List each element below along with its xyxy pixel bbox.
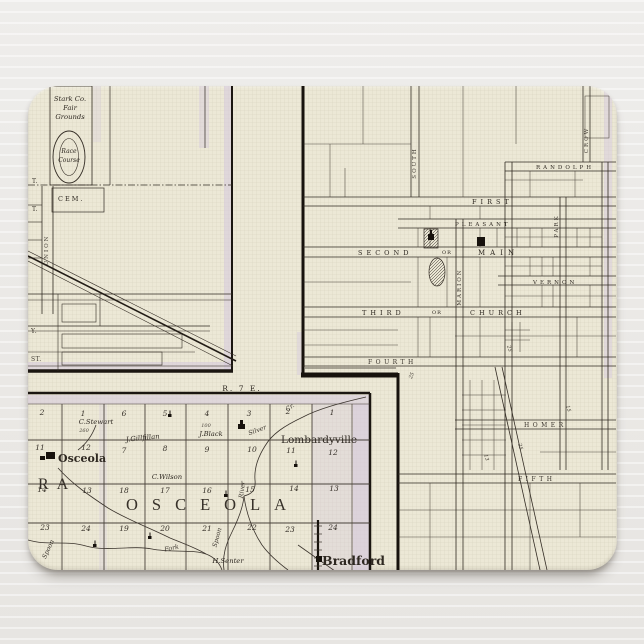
township-name-osceola: OSCEOLA <box>126 495 300 514</box>
street-label-or-main: OR <box>442 250 452 256</box>
section-number: 11 <box>35 443 45 452</box>
section-number: 17 <box>160 486 170 495</box>
race-course-label-2: Course <box>58 157 80 164</box>
section-number: 13 <box>329 484 339 493</box>
river-label-fork: Fork <box>163 544 180 554</box>
landowner-label: C.Wilson <box>152 473 182 481</box>
lot-number: 25 <box>505 344 513 353</box>
section-number: 24 <box>80 524 91 533</box>
street-stub-label: Y. <box>30 328 37 335</box>
product-photo-background: { "scene": { "bg_color": "#eae8e5", "pad… <box>0 0 644 644</box>
race-course-label-1: Race <box>60 148 77 155</box>
acreage-label: 260 <box>78 428 89 434</box>
vertical-streets <box>411 86 608 570</box>
section-number: 12 <box>81 443 91 452</box>
town-label-bradford: Bradford <box>322 553 385 568</box>
public-buildings <box>424 229 485 286</box>
landowner-label: J.Gillfillan <box>124 432 160 444</box>
landowner-label: H.Senter <box>211 557 244 565</box>
section-number: 1 <box>81 409 86 418</box>
section-number: 6 <box>122 409 127 418</box>
section-number: 23 <box>284 525 295 534</box>
street-label-south: SOUTH <box>412 147 418 178</box>
township-map: 2 1 6 5 4 3 2 1 11 12 7 8 9 10 11 12 14 … <box>28 393 385 576</box>
section-number: 18 <box>119 486 129 495</box>
street-label-fourth: FOURTH <box>368 359 417 366</box>
section-number: 21 <box>201 524 212 533</box>
lot-number: 15 <box>564 405 571 413</box>
section-number: 1 <box>330 408 335 417</box>
section-number: 13 <box>82 486 92 495</box>
section-number: 8 <box>163 444 168 453</box>
street-label-homer: HOMER <box>524 422 567 429</box>
cemetery-label: CEM. <box>58 195 84 203</box>
river-label-spoon: Spoon <box>41 539 56 560</box>
section-number: 15 <box>245 485 255 494</box>
river-label-spoon: Spoon <box>212 527 224 548</box>
street-label-park: PARK <box>554 214 560 237</box>
section-number: 10 <box>247 445 257 454</box>
street-label-crow: CROW <box>584 127 590 154</box>
fairgrounds-label-1: Stark Co. <box>54 95 86 103</box>
section-number: 9 <box>205 445 210 454</box>
union-street-label: UNION <box>44 235 50 266</box>
section-number: 3 <box>247 409 252 418</box>
left-city-inset: Stark Co. Fair Grounds Race Course CEM. … <box>28 86 236 372</box>
hall-building <box>477 237 485 246</box>
town-label-lombardyville: Lombardyville <box>281 434 357 446</box>
street-label-church: CHURCH <box>470 309 526 317</box>
section-number: 20 <box>159 524 170 533</box>
street-label-vernon: VERNON <box>532 280 577 286</box>
acreage-label: 100 <box>201 423 211 429</box>
church-icon <box>93 541 97 548</box>
church-icon <box>168 411 172 418</box>
street-label-second: SECOND <box>358 249 412 257</box>
lot-number: 25 <box>408 372 416 381</box>
lot-number: 25 <box>516 442 524 451</box>
fairgrounds-label-3: Grounds <box>55 113 85 121</box>
lombardyville-marker <box>238 424 245 429</box>
section-number: 23 <box>39 523 50 532</box>
section-number: 5 <box>163 409 168 418</box>
section-number: 11 <box>286 446 296 455</box>
left-inset-purple-right-band <box>224 86 232 372</box>
section-number: 14 <box>289 484 299 493</box>
street-label-fifth: FIFTH <box>518 476 555 483</box>
street-label-main: MAIN <box>478 249 519 257</box>
street-label-third: THIRD <box>362 309 405 317</box>
section-number: 7 <box>122 446 127 455</box>
section-number: 22 <box>246 523 257 532</box>
church-icon <box>294 461 298 468</box>
street-label-pleasant: PLEASANT <box>455 222 511 228</box>
lot-number: 13 <box>482 454 489 462</box>
fairgrounds-label-2: Fair <box>62 104 77 112</box>
street-label-or-church: OR <box>432 310 442 316</box>
township-name-partial: RA <box>38 476 76 493</box>
street-stub-label: ST. <box>31 356 42 363</box>
osceola-town-marker <box>46 452 55 459</box>
church-icon <box>148 533 152 540</box>
street-stub-label: T. <box>32 178 38 185</box>
section-number: 2 <box>39 408 45 417</box>
street-label-first: FIRST <box>472 198 513 206</box>
township-purple-top-band <box>28 395 370 404</box>
section-number: 24 <box>327 523 338 532</box>
section-number: 12 <box>328 448 338 457</box>
town-label-osceola: Osceola <box>58 452 106 465</box>
map-print: Stark Co. Fair Grounds Race Course CEM. … <box>0 0 644 644</box>
landowner-label: J.Black <box>197 430 223 438</box>
section-numbers: 2 1 6 5 4 3 2 1 11 12 7 8 9 10 11 12 14 … <box>35 407 339 534</box>
landowner-label: C.Stewart <box>79 418 114 426</box>
city-park-oval <box>429 258 445 286</box>
section-number: 4 <box>204 409 210 418</box>
street-stub-label: T. <box>32 206 38 213</box>
railroad <box>28 251 236 366</box>
street-label-randolph: RANDOLPH <box>536 165 594 171</box>
street-label-marion: MARION <box>457 268 463 305</box>
range-label: R. 7 E. <box>222 384 261 393</box>
river-label-silver: Silver <box>248 424 269 437</box>
section-number: 19 <box>119 524 129 533</box>
section-number: 16 <box>202 486 212 495</box>
